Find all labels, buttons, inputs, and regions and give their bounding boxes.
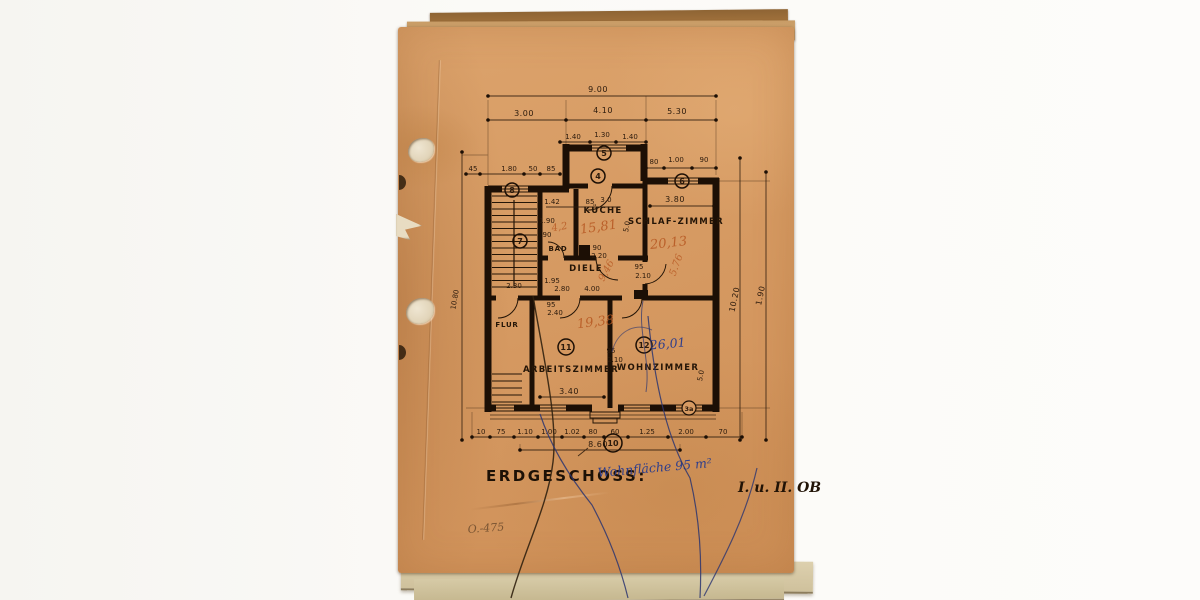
dim-schlaf-sm-1: 95	[635, 263, 644, 271]
svg-text:4: 4	[595, 172, 601, 181]
marker-3a: 3a	[682, 401, 696, 415]
svg-text:5: 5	[601, 149, 607, 158]
dim-diele-1: 1.95	[544, 277, 560, 285]
dim-stair-width: 2.30	[506, 282, 522, 290]
svg-text:7: 7	[517, 237, 523, 246]
dim-top-3: 5.30	[667, 107, 687, 116]
dim-top2-2: 1.30	[594, 131, 610, 139]
room-label-wohnzimmer: WOHNZIMMER	[617, 363, 699, 373]
dim-bottom-3: 1.10	[517, 428, 533, 436]
dim-bad-2: 90	[543, 231, 552, 239]
room-label-diele: DIELE	[569, 264, 603, 274]
dim-entry-2: 1.00	[668, 156, 684, 164]
pencil-note: O.-475	[467, 520, 504, 536]
marker-11: 11	[558, 339, 574, 355]
room-label-flur: FLUR	[495, 321, 518, 329]
dim-top-2: 4.10	[593, 106, 613, 115]
dim-schlaf-height-hand: 5.76	[668, 252, 686, 277]
svg-text:6: 6	[679, 177, 685, 186]
blue-annotation: Wohnfläche 95 m²	[597, 455, 712, 480]
svg-text:8: 8	[509, 186, 515, 195]
dim-schlaf-sm-2: 2.10	[635, 272, 651, 280]
marker-5: 5	[597, 146, 611, 160]
entrance-steps	[590, 412, 620, 423]
dim-kueche-sm-2: 2.20	[591, 252, 607, 260]
dim-bottom-5: 1.02	[564, 428, 580, 436]
room-label-arbeitszimmer: ARBEITSZIMMER	[523, 365, 619, 375]
dim-bottom-2: 75	[497, 428, 506, 436]
dim-entry-3: 90	[700, 156, 709, 164]
dim-left-2: 1.80	[501, 165, 517, 173]
dim-bottom-1: 10	[477, 428, 486, 436]
dim-entry-1: 80	[650, 158, 659, 166]
dim-schlaf-width: 3.80	[665, 195, 685, 204]
dim-right-vertical-2: 1.90	[754, 285, 767, 306]
svg-text:10: 10	[607, 439, 619, 448]
handwritten-areas: 15,81 4,2 9,46 20,13 5.76 19,38 26,01	[550, 218, 688, 353]
dim-diele-3: 4.00	[584, 285, 600, 293]
svg-text:11: 11	[560, 343, 572, 352]
dim-left-vertical: 10.80	[449, 289, 460, 310]
dim-left-4: 85	[547, 165, 556, 173]
dim-kueche-1: 1.42	[544, 198, 560, 206]
dim-bottom-10: 70	[719, 428, 728, 436]
dim-left-3: 50	[529, 165, 538, 173]
dim-arbeits-sm-1: 95	[547, 301, 556, 309]
dim-arbeits-sm-2: 2.40	[547, 309, 563, 317]
marker-4: 4	[591, 169, 605, 183]
area-wohnzimmer: 26,01	[648, 334, 686, 352]
dim-kueche-2: 85	[586, 198, 595, 206]
svg-text:3a: 3a	[685, 405, 694, 413]
dim-left-1: 45	[469, 165, 478, 173]
area-bad: 4,2	[550, 221, 569, 235]
area-kueche: 15,81	[579, 218, 618, 238]
room-label-kueche: KÜCHE	[584, 205, 623, 216]
stray-pen-strokes	[511, 296, 757, 598]
dim-top-1: 3.00	[514, 109, 534, 118]
dim-total-width: 9.00	[588, 85, 608, 94]
dim-kueche-3: 3.0	[600, 196, 611, 204]
dim-top2-3: 1.40	[622, 133, 638, 141]
floor-plan-drawing: 9.00 3.00 4.10 5.30 1.40 1.30 1.40 80 1.…	[0, 0, 1200, 600]
dim-diele-2: 2.80	[554, 285, 570, 293]
dim-right-vertical: 10.20	[728, 286, 742, 313]
dim-kueche-sm-1: 90	[593, 244, 602, 252]
annotations: ERDGESCHOSS: Wohnfläche 95 m² I. u. II. …	[467, 455, 821, 536]
dim-bottom-8: 1.25	[639, 428, 655, 436]
scanned-blueprint-page: 9.00 3.00 4.10 5.30 1.40 1.30 1.40 80 1.…	[0, 0, 1200, 600]
area-schlafzimmer: 20,13	[648, 234, 688, 253]
dim-bottom-9: 2.00	[678, 428, 694, 436]
dim-bottom-6: 80	[589, 428, 598, 436]
dim-top2-1: 1.40	[565, 133, 581, 141]
room-label-bad: BAD	[549, 245, 568, 253]
room-label-schlafzimmer: SCHLAF-ZIMMER	[628, 217, 724, 227]
dim-arbeits-width: 3.40	[559, 387, 579, 396]
marker-8: 8	[505, 183, 519, 197]
dim-wohn-sm-1: 95	[607, 347, 616, 355]
